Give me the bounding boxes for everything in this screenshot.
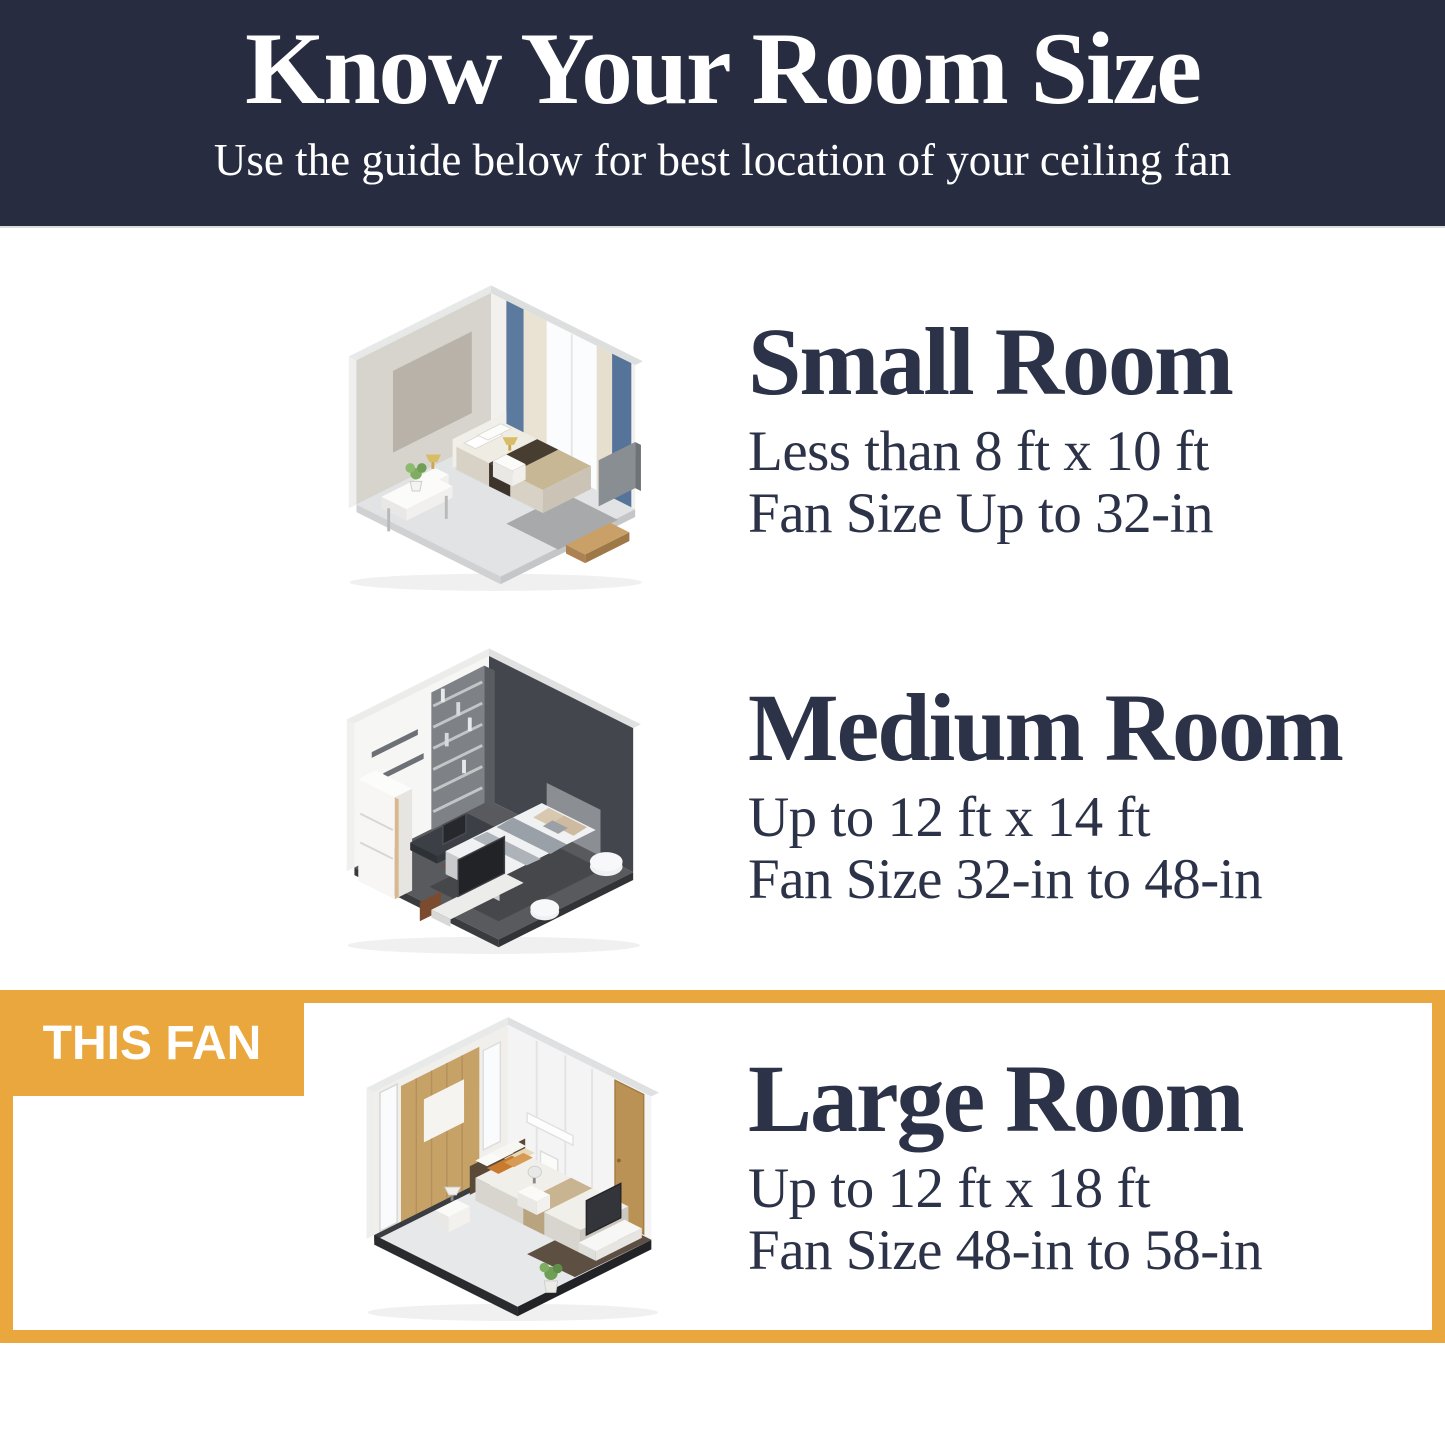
- header-banner: Know Your Room Size Use the guide below …: [0, 0, 1445, 228]
- medium-room-isometric-bedroom-graphic: [316, 629, 662, 956]
- small-room-size-range: Less than 8 ft x 10 ft: [748, 421, 1232, 483]
- dresser: [358, 770, 412, 899]
- small-room-isometric-bedroom-graphic: [318, 266, 664, 593]
- medium-room-size-range: Up to 12 ft x 14 ft: [748, 787, 1342, 849]
- large-room-isometric-bedroom-graphic: [336, 998, 680, 1323]
- large-room-illustration: [336, 998, 680, 1323]
- this-fan-badge-label: THIS FAN: [43, 1016, 262, 1071]
- small-room-fan-size: Fan Size Up to 32-in: [748, 483, 1232, 545]
- small-room-text: Small Room Less than 8 ft x 10 ft Fan Si…: [748, 314, 1232, 545]
- large-room-heading: Large Room: [748, 1051, 1262, 1147]
- room-size-guide-infographic: Know Your Room Size Use the guide below …: [0, 0, 1445, 1445]
- large-room-fan-size: Fan Size 48-in to 58-in: [748, 1220, 1262, 1282]
- small-room-heading: Small Room: [748, 314, 1232, 410]
- medium-room-fan-size: Fan Size 32-in to 48-in: [748, 849, 1342, 911]
- medium-room-heading: Medium Room: [748, 680, 1342, 776]
- large-room-text: Large Room Up to 12 ft x 18 ft Fan Size …: [748, 1051, 1262, 1282]
- page-subtitle: Use the guide below for best location of…: [0, 138, 1445, 183]
- small-room-illustration: [318, 266, 664, 593]
- medium-room-illustration: [316, 629, 662, 956]
- medium-room-text: Medium Room Up to 12 ft x 14 ft Fan Size…: [748, 680, 1342, 911]
- this-fan-badge: THIS FAN: [0, 990, 304, 1096]
- large-room-size-range: Up to 12 ft x 18 ft: [748, 1158, 1262, 1220]
- page-title: Know Your Room Size: [0, 18, 1445, 121]
